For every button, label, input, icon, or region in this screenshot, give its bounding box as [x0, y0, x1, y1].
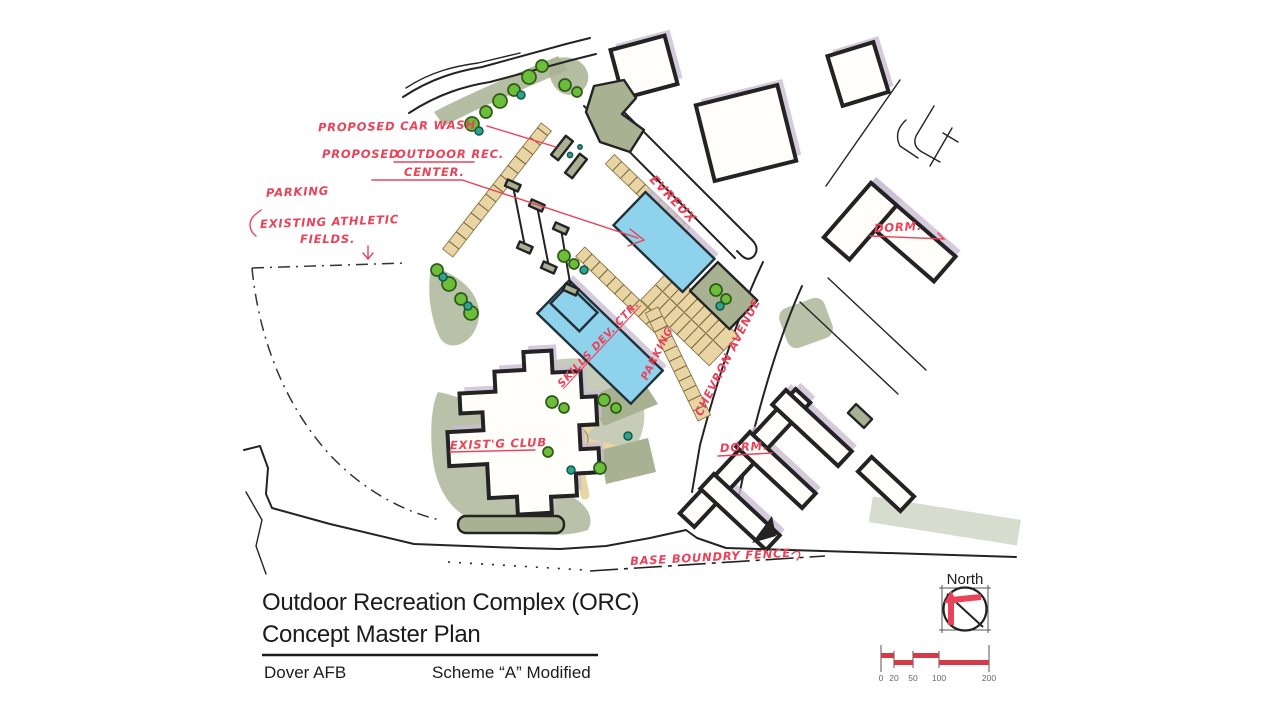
recreation-court-posts — [505, 179, 579, 295]
label-base-boundary: BASE BOUNDRY FENCE — [630, 546, 792, 568]
site-label: Dover AFB — [264, 663, 346, 682]
existing-building-2 — [696, 79, 801, 181]
title-block: Outdoor Recreation Complex (ORC) Concept… — [262, 589, 639, 682]
sheet-title-line2: Concept Master Plan — [262, 621, 480, 648]
scale-seg-4 — [939, 660, 989, 665]
scale-seg-2 — [894, 660, 913, 665]
label-center: CENTER. — [404, 165, 465, 179]
scale-bar: 0 20 50 100 200 — [879, 645, 997, 683]
master-plan-drawing: PROPOSED CAR WASH PROPOSED OUTDOOR REC. … — [0, 0, 1280, 720]
scheme-label: Scheme “A” Modified — [432, 663, 591, 682]
scale-seg-1 — [881, 653, 894, 658]
concept-master-plan-sheet: PROPOSED CAR WASH PROPOSED OUTDOOR REC. … — [0, 0, 1280, 720]
dorm-upper-building — [824, 177, 961, 311]
existing-building-3 — [827, 36, 893, 106]
label-parking-fields: PARKING — [266, 184, 329, 200]
car-wash-structures — [551, 136, 587, 178]
label-fields: FIELDS. — [300, 232, 355, 246]
scale-seg-3 — [913, 653, 939, 658]
buildings — [443, 30, 960, 550]
label-outdoor-rec: OUTDOOR REC. — [396, 147, 504, 161]
label-proposed-car-wash: PROPOSED CAR WASH — [318, 118, 476, 135]
scale-tick-20: 20 — [889, 673, 899, 683]
north-label: North — [947, 571, 984, 588]
label-proposed: PROPOSED — [322, 147, 399, 161]
north-arrow: North — [939, 571, 991, 633]
scale-tick-50: 50 — [908, 673, 918, 683]
scale-tick-0: 0 — [879, 673, 884, 683]
scale-ticks — [881, 645, 989, 672]
parking-strip-west — [443, 123, 552, 257]
label-dorm-upper: DORM. — [874, 219, 923, 235]
sheet-title-line1: Outdoor Recreation Complex (ORC) — [262, 589, 639, 616]
red-annotations: PROPOSED CAR WASH PROPOSED OUTDOOR REC. … — [250, 118, 944, 568]
scale-tick-200: 200 — [982, 673, 996, 683]
dorm-lower-building — [680, 383, 914, 550]
label-existing-athletic: EXISTING ATHLETIC — [260, 212, 399, 231]
scale-tick-100: 100 — [932, 673, 946, 683]
label-dorm-lower: DORM. — [720, 439, 769, 455]
